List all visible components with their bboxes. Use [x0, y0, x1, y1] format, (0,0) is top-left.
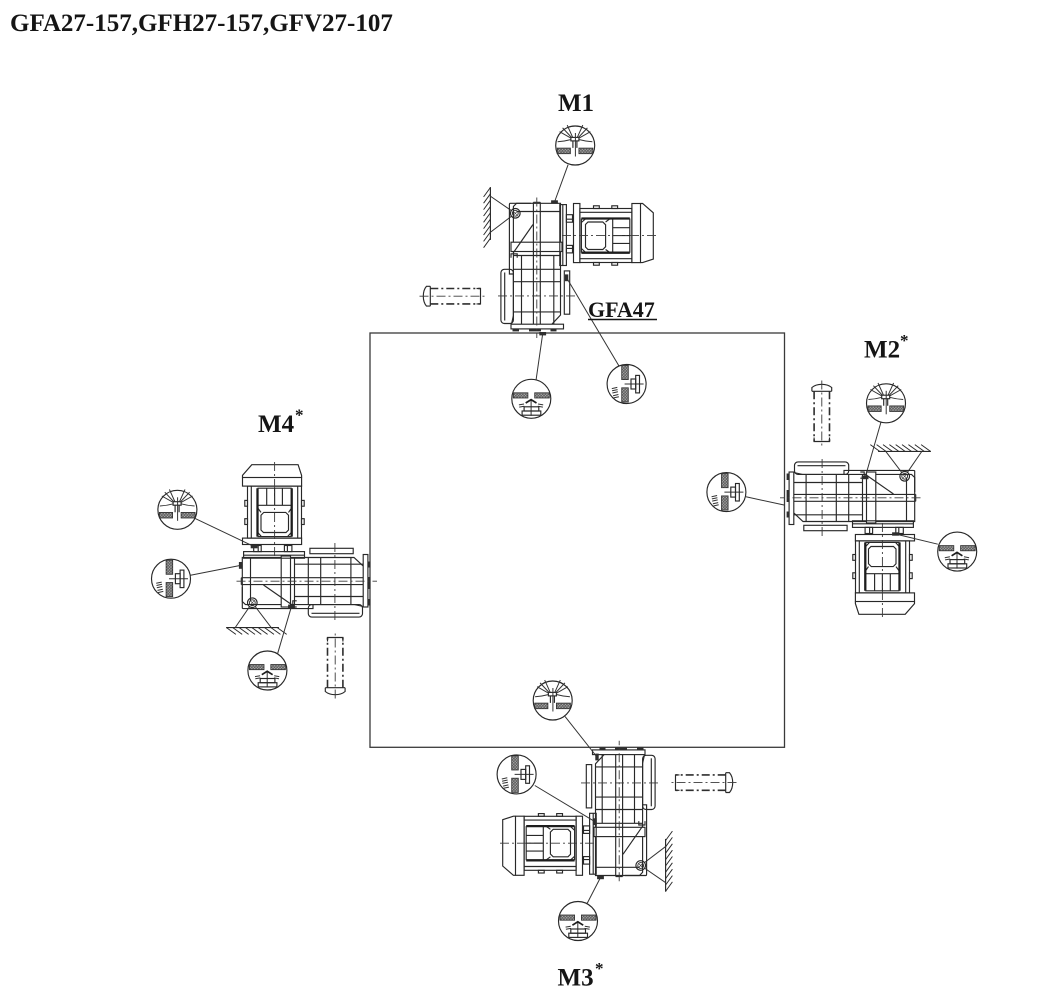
- svg-text:GFA47: GFA47: [588, 297, 655, 322]
- svg-text:M2: M2: [864, 337, 900, 364]
- svg-text:*: *: [595, 959, 604, 978]
- svg-text:M4: M4: [258, 411, 295, 438]
- svg-text:M1: M1: [558, 90, 594, 117]
- svg-text:*: *: [295, 406, 304, 425]
- svg-text:*: *: [900, 331, 909, 350]
- svg-text:GFA27-157,GFH27-157,GFV27-107: GFA27-157,GFH27-157,GFV27-107: [10, 10, 393, 37]
- svg-text:M3: M3: [558, 965, 594, 992]
